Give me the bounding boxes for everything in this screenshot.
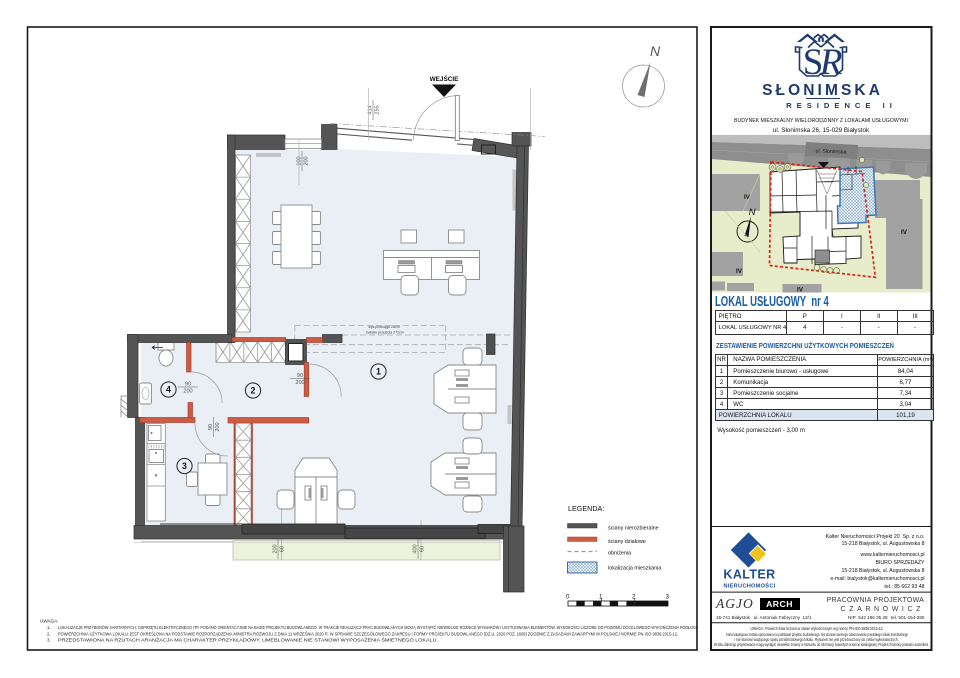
svg-text:200: 200	[272, 544, 278, 553]
svg-text:200: 200	[303, 156, 309, 165]
svg-text:N: N	[650, 43, 661, 59]
svg-text:PRZEDSTAWIONA NA RZUTACH ARANŻ: PRZEDSTAWIONA NA RZUTACH ARANŻACJA MA CH…	[58, 638, 438, 643]
svg-text:60: 60	[419, 546, 425, 552]
svg-text:IV: IV	[901, 229, 908, 236]
svg-text:N: N	[749, 207, 756, 218]
svg-text:200: 200	[183, 388, 192, 394]
svg-text:IV: IV	[744, 194, 751, 201]
svg-text:2.: 2.	[47, 631, 51, 636]
svg-text:4: 4	[166, 385, 171, 395]
svg-text:ściany nierozbieralne: ściany nierozbieralne	[608, 526, 659, 532]
svg-text:1.: 1.	[47, 625, 51, 630]
svg-text:lokalizacja mieszkania: lokalizacja mieszkania	[608, 566, 661, 572]
svg-text:100: 100	[296, 156, 302, 165]
svg-text:IV: IV	[797, 287, 804, 294]
svg-text:UWAGA: Powierzchnia liczona: UWAGA: Powierzchnia liczona w stanie wyk…	[751, 626, 884, 631]
svg-text:WEJŚCIE: WEJŚCIE	[430, 74, 460, 83]
svg-text:200: 200	[295, 380, 304, 386]
svg-text:0: 0	[566, 594, 570, 601]
svg-text:*: *	[154, 472, 158, 482]
svg-text:200: 200	[215, 422, 221, 431]
svg-text:1: 1	[599, 594, 603, 601]
svg-text:UWAGA:: UWAGA:	[40, 619, 58, 624]
svg-text:1: 1	[376, 367, 381, 377]
svg-text:3: 3	[666, 594, 670, 601]
svg-text:W toku dalszego projektowania: W toku dalszego projektowania mogą wystą…	[714, 642, 929, 647]
svg-text:90: 90	[185, 381, 191, 387]
svg-text:ściany działowe: ściany działowe	[608, 539, 646, 545]
svg-text:LOKALIZACJE PRZYBORÓW SANITARN: LOKALIZACJE PRZYBORÓW SANITARNYCH, OSPRZ…	[58, 625, 698, 630]
svg-text:60: 60	[279, 546, 285, 552]
svg-text:400: 400	[412, 544, 418, 553]
svg-text:90: 90	[297, 373, 303, 379]
svg-text:2: 2	[251, 386, 256, 396]
svg-text:R: R	[819, 42, 843, 83]
svg-text:światło przejścia 272cm: światło przejścia 272cm	[366, 331, 404, 335]
svg-text:2: 2	[632, 594, 636, 601]
svg-text:90: 90	[208, 424, 214, 430]
svg-text:obniżenia: obniżenia	[608, 551, 631, 557]
svg-text:POWIERZCHNIA UŻYTKOWA LOKALU J: POWIERZCHNIA UŻYTKOWA LOKALU JEST OKREŚL…	[58, 631, 678, 636]
svg-text:3.: 3.	[47, 638, 51, 643]
svg-text:wys.podciągu 26cm: wys.podciągu 26cm	[368, 325, 400, 329]
svg-text:255: 255	[374, 105, 380, 114]
svg-text:3: 3	[182, 461, 187, 471]
svg-text:IV: IV	[736, 268, 743, 275]
svg-text:LEGENDA:: LEGENDA:	[568, 504, 604, 513]
